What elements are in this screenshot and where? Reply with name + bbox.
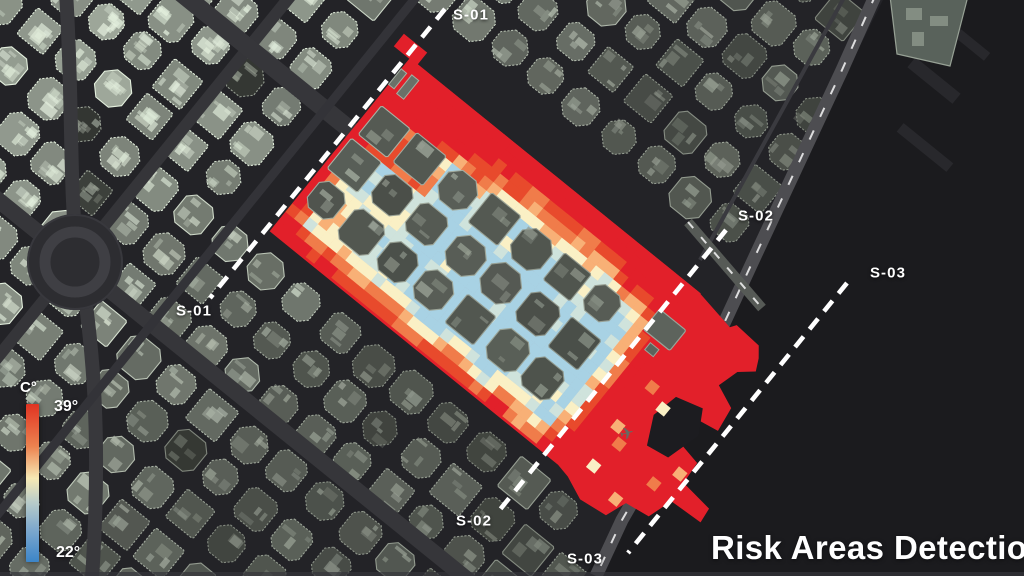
- section-label-s-02-end: S-02: [456, 513, 492, 530]
- section-label-s-03-start: S-03: [870, 265, 906, 282]
- risk-map-stage: ✈ S-01S-01S-02S-02S-03S-03 C° 39° 22° Ri…: [0, 0, 1024, 576]
- city-map-canvas: ✈: [0, 0, 1024, 576]
- section-label-s-03-end: S-03: [567, 551, 603, 568]
- section-label-s-01-start: S-01: [453, 7, 489, 24]
- legend-max-label: 39°: [54, 398, 78, 416]
- legend-gradient-bar: [26, 404, 39, 562]
- legend-min-label: 22°: [56, 544, 80, 562]
- section-label-s-01-end: S-01: [176, 303, 212, 320]
- map-title: Risk Areas Detection: [711, 529, 1024, 567]
- legend-unit-label: C°: [20, 379, 37, 396]
- section-label-s-02-start: S-02: [738, 208, 774, 225]
